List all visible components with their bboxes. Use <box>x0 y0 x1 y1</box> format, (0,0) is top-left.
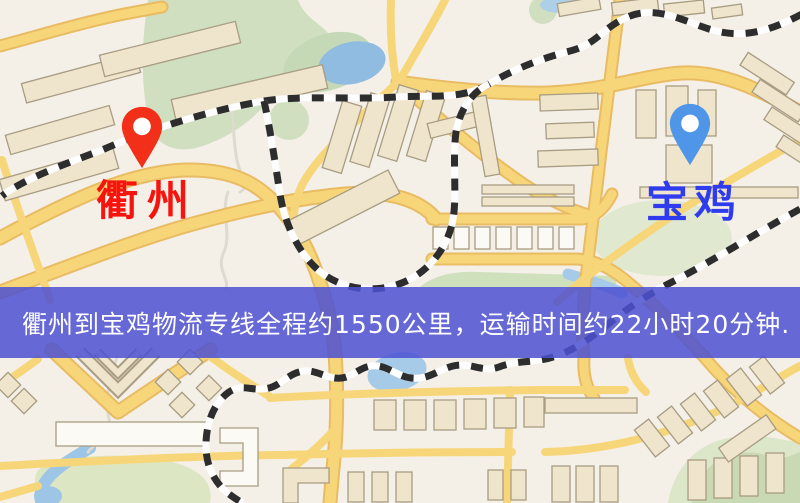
destination-label: 宝鸡 <box>646 182 742 224</box>
route-info-banner: 衢州到宝鸡物流专线全程约1550公里，运输时间约22小时20分钟. <box>0 287 800 358</box>
map-background <box>0 0 800 503</box>
origin-label: 衢州 <box>96 180 198 222</box>
logistics-route-map: 衢州 宝鸡 衢州到宝鸡物流专线全程约1550公里，运输时间约22小时20分钟. <box>0 0 800 503</box>
route-info-text: 衢州到宝鸡物流专线全程约1550公里，运输时间约22小时20分钟. <box>22 305 790 341</box>
